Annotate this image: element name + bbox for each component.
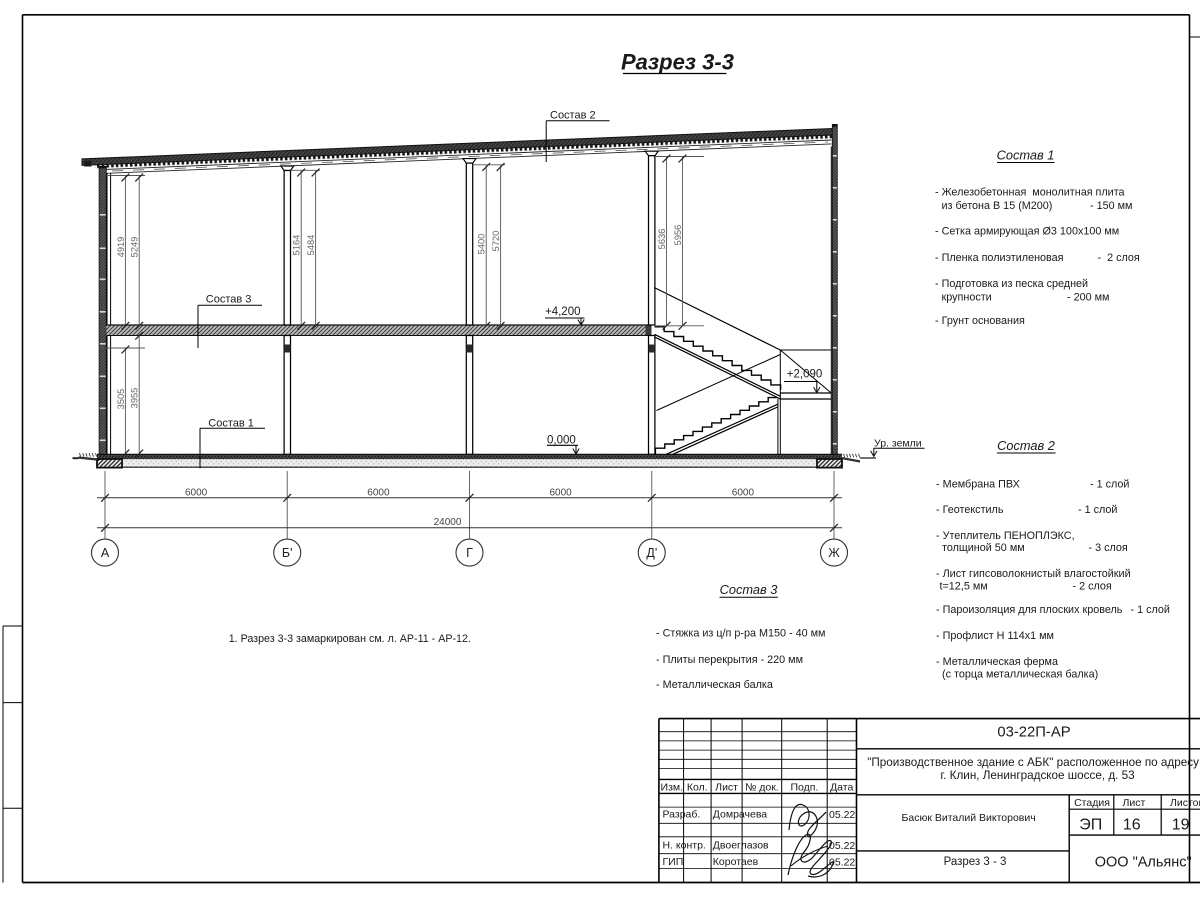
svg-text:ЭП: ЭП (1079, 817, 1102, 834)
svg-text:Подп.: Подп. (790, 782, 818, 794)
svg-text:0,000: 0,000 (547, 434, 576, 446)
svg-text:3955: 3955 (130, 388, 140, 409)
svg-text:Лист: Лист (1122, 797, 1145, 809)
svg-text:- Железобетонная монолитная п: - Железобетонная монолитная плита (935, 187, 1125, 199)
svg-text:05.22: 05.22 (829, 840, 855, 852)
svg-text:(с торца металлическая балка): (с торца металлическая балка) (942, 669, 1098, 681)
svg-text:4919: 4919 (116, 237, 126, 258)
svg-text:6000: 6000 (185, 487, 208, 498)
svg-text:Двоеглазов: Двоеглазов (713, 840, 769, 852)
svg-text:ГИП: ГИП (663, 856, 684, 868)
svg-text:Б': Б' (282, 546, 293, 560)
svg-text:Стадия: Стадия (1074, 797, 1110, 809)
svg-text:Лист: Лист (715, 782, 738, 794)
svg-text:крупности: крупности (942, 292, 992, 304)
svg-text:5720: 5720 (491, 231, 501, 252)
svg-text:- Подготовка из песка средней: - Подготовка из песка средней (935, 278, 1088, 290)
svg-text:из бетона В 15 (М200): из бетона В 15 (М200) (942, 200, 1053, 212)
svg-text:Дата: Дата (830, 782, 853, 794)
svg-text:Ж: Ж (828, 546, 840, 560)
svg-text:- 3 слоя: - 3 слоя (1089, 542, 1128, 554)
svg-text:5956: 5956 (673, 225, 683, 246)
svg-text:Разраб.: Разраб. (663, 808, 701, 820)
svg-text:ООО "Альянс": ООО "Альянс" (1095, 855, 1192, 871)
svg-text:Разрез 3 - 3: Разрез 3 - 3 (944, 856, 1007, 868)
svg-text:- Пароизоляция для плоских кро: - Пароизоляция для плоских кровель (936, 604, 1123, 616)
svg-text:- Плиты перекрытия - 220 мм: - Плиты перекрытия - 220 мм (656, 654, 803, 666)
svg-text:Басюк Виталий Викторович: Басюк Виталий Викторович (901, 812, 1035, 824)
svg-text:- Профлист Н 114х1 мм: - Профлист Н 114х1 мм (936, 630, 1054, 642)
svg-text:Ур. земли: Ур. земли (874, 437, 922, 449)
svg-text:1. Разрез 3-3 замаркирован см.: 1. Разрез 3-3 замаркирован см. л. АР-11 … (229, 633, 471, 645)
svg-text:- Утеплитель ПЕНОПЛЭКС,: - Утеплитель ПЕНОПЛЭКС, (936, 530, 1075, 542)
svg-text:А: А (101, 546, 110, 560)
svg-text:5249: 5249 (130, 237, 140, 258)
svg-text:- Металлическая ферма: - Металлическая ферма (936, 656, 1058, 668)
svg-text:Коротаев: Коротаев (713, 856, 759, 868)
svg-text:Н. контр.: Н. контр. (663, 840, 706, 852)
svg-text:6000: 6000 (732, 487, 755, 498)
svg-text:- Геотекстиль: - Геотекстиль (936, 504, 1004, 516)
svg-text:3505: 3505 (116, 389, 126, 410)
svg-text:5636: 5636 (657, 229, 667, 250)
svg-text:6000: 6000 (549, 487, 572, 498)
svg-text:№ док.: № док. (745, 782, 779, 794)
svg-text:- 200 мм: - 200 мм (1067, 292, 1109, 304)
svg-text:- Сетка армирующая Ø3 100х100: - Сетка армирующая Ø3 100х100 мм (935, 226, 1119, 238)
svg-text:+2,090: +2,090 (787, 368, 823, 380)
svg-text:- Стяжка из ц/п р-ра М150 - 40: - Стяжка из ц/п р-ра М150 - 40 мм (656, 628, 825, 640)
svg-text:03-22П-АР: 03-22П-АР (997, 725, 1070, 741)
svg-text:t=12,5 мм: t=12,5 мм (940, 581, 988, 593)
svg-text:Г: Г (466, 546, 473, 560)
svg-text:- 150 мм: - 150 мм (1090, 200, 1132, 212)
svg-text:г. Клин, Ленинградское шоссе,: г. Клин, Ленинградское шоссе, д. 53 (940, 769, 1134, 782)
svg-text:19: 19 (1172, 817, 1190, 834)
svg-text:Состав 2: Состав 2 (997, 438, 1055, 453)
svg-text:"Производственное здание с АБК: "Производственное здание с АБК" располож… (867, 756, 1200, 769)
svg-text:- 1 слой: - 1 слой (1131, 604, 1170, 616)
svg-text:- Лист гипсоволокнистый влагос: - Лист гипсоволокнистый влагостойкий (936, 568, 1131, 580)
svg-text:16: 16 (1123, 817, 1141, 834)
svg-text:Д': Д' (646, 546, 657, 560)
svg-text:5164: 5164 (292, 235, 302, 256)
svg-text:24000: 24000 (434, 517, 462, 528)
svg-text:Состав 2: Состав 2 (550, 110, 596, 122)
svg-text:- Мембрана ПВХ: - Мембрана ПВХ (936, 479, 1020, 491)
svg-text:- Металлическая балка: - Металлическая балка (656, 679, 773, 691)
svg-text:- 2 слоя: - 2 слоя (1073, 581, 1112, 593)
svg-text:Кол.: Кол. (687, 782, 708, 794)
svg-text:- 2 слоя: - 2 слоя (1098, 252, 1140, 264)
svg-text:Состав 3: Состав 3 (206, 294, 252, 306)
svg-text:- Грунт основания: - Грунт основания (935, 315, 1025, 327)
svg-text:6000: 6000 (367, 487, 390, 498)
svg-text:Разрез 3-3: Разрез 3-3 (621, 50, 734, 75)
svg-text:Изм.: Изм. (661, 782, 684, 794)
svg-text:толщиной 50 мм: толщиной 50 мм (942, 542, 1025, 554)
svg-text:Состав 1: Состав 1 (997, 148, 1055, 163)
svg-text:5484: 5484 (306, 235, 316, 256)
svg-text:- Пленка полиэтиленовая: - Пленка полиэтиленовая (935, 252, 1064, 264)
svg-text:Состав 3: Состав 3 (720, 582, 778, 597)
svg-text:Листов: Листов (1170, 797, 1200, 809)
svg-text:- 1 слой: - 1 слой (1078, 504, 1117, 516)
svg-text:Домрачева: Домрачева (713, 808, 768, 820)
svg-text:5400: 5400 (477, 234, 487, 255)
svg-text:Состав 1: Состав 1 (208, 417, 254, 429)
svg-text:+4,200: +4,200 (545, 306, 581, 318)
svg-text:- 1 слой: - 1 слой (1090, 479, 1129, 491)
svg-text:05.22: 05.22 (829, 809, 855, 821)
